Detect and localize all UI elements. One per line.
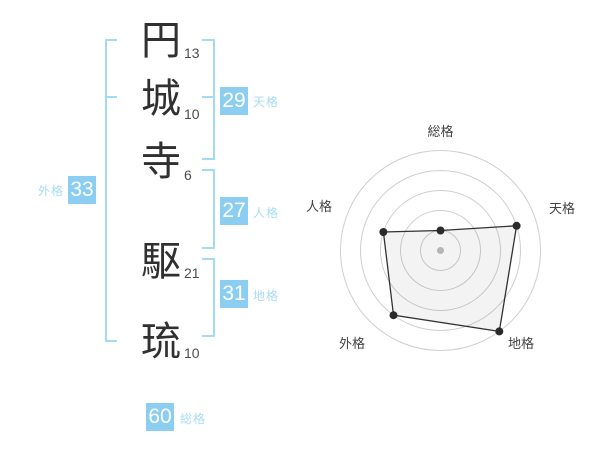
jinkaku-value-badge: 27 (220, 197, 248, 225)
radar-axis-label-tenkaku: 天格 (549, 201, 575, 216)
gaikaku-label: 外格 (34, 185, 64, 198)
tenkaku-value-badge: 29 (220, 87, 248, 115)
tenkaku-bracket-line (213, 39, 215, 160)
surname-char-2: 城 (135, 79, 187, 119)
tenkaku-bracket-tick-bottom (202, 158, 215, 160)
tenkaku-bracket-tick-mid (202, 96, 215, 98)
radar-polygon (383, 226, 516, 332)
gaikaku-bracket-tick-top (105, 39, 117, 41)
surname-char-3-strokes: 6 (184, 168, 210, 182)
given-char-2-strokes: 10 (184, 346, 210, 360)
chikaku-value-badge: 31 (220, 280, 248, 308)
radar-point-tenkaku (513, 222, 521, 230)
given-char-1: 駆 (135, 242, 187, 282)
soukaku-label: 総格 (180, 413, 206, 426)
radar-point-chikaku (495, 327, 503, 335)
radar-axis-label-chikaku: 地格 (508, 336, 534, 351)
given-char-1-strokes: 21 (184, 266, 210, 280)
surname-char-3: 寺 (135, 142, 187, 182)
radar-chart: 総格天格地格外格人格 (0, 0, 600, 470)
chikaku-bracket-tick-bottom (202, 335, 215, 337)
soukaku-value-badge: 60 (146, 403, 174, 431)
surname-char-2-strokes: 10 (184, 107, 210, 121)
surname-char-1: 円 (135, 21, 187, 61)
radar-axis-label-gaikaku: 外格 (339, 336, 365, 351)
radar-center-dot (437, 247, 444, 254)
jinkaku-bracket-line (213, 169, 215, 249)
radar-axis-label-jinkaku: 人格 (306, 199, 332, 214)
name-analysis-panel: 総格天格地格外格人格 円 13 城 10 寺 6 駆 21 琉 10 29 天格… (0, 0, 600, 470)
surname-char-1-strokes: 13 (184, 46, 210, 60)
gaikaku-bracket-line (105, 39, 107, 342)
jinkaku-label: 人格 (253, 207, 279, 220)
radar-axis-label-soukaku: 総格 (427, 124, 453, 139)
chikaku-label: 地格 (253, 290, 279, 303)
chikaku-bracket-line (213, 258, 215, 337)
jinkaku-bracket-tick-bottom (202, 247, 215, 249)
radar-point-gaikaku (390, 311, 398, 319)
gaikaku-bracket-tick-mid (105, 96, 117, 98)
gaikaku-bracket-tick-bottom (105, 340, 117, 342)
chikaku-bracket-tick-top (202, 258, 215, 260)
radar-point-soukaku (437, 227, 445, 235)
given-char-2: 琉 (135, 322, 187, 362)
tenkaku-label: 天格 (253, 96, 279, 109)
tenkaku-bracket-tick-top (202, 39, 215, 41)
gaikaku-value-badge: 33 (68, 176, 96, 204)
radar-point-jinkaku (379, 228, 387, 236)
